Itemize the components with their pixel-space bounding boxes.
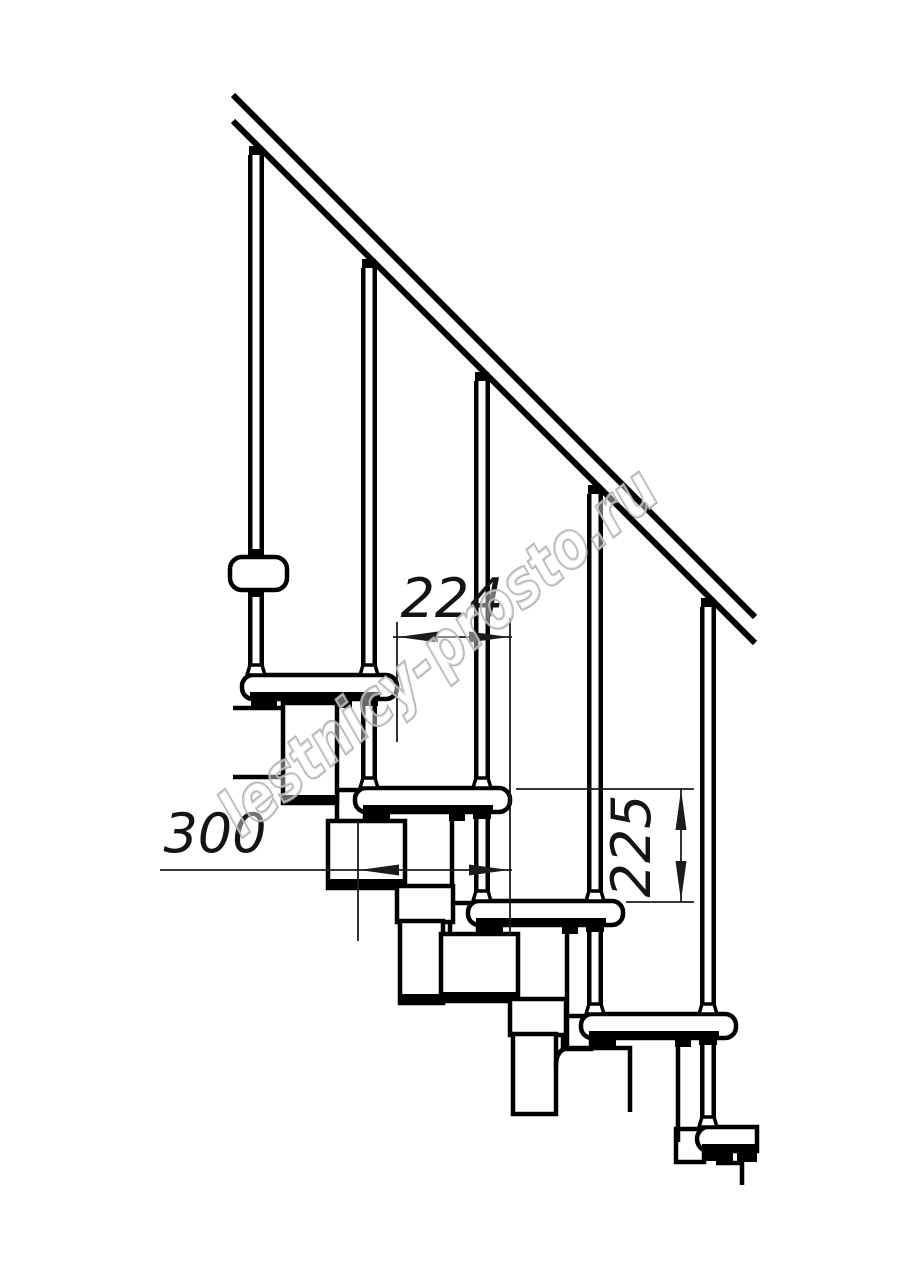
stair-drawing-page: 224 300 225 lestnicy-prosto.ru (0, 0, 914, 1280)
dim-riser-label: 225 (600, 794, 663, 897)
stair-drawing: 224 300 225 lestnicy-prosto.ru (0, 0, 914, 1280)
wall-bracket (230, 549, 287, 597)
dimension-riser: 225 (516, 789, 694, 902)
